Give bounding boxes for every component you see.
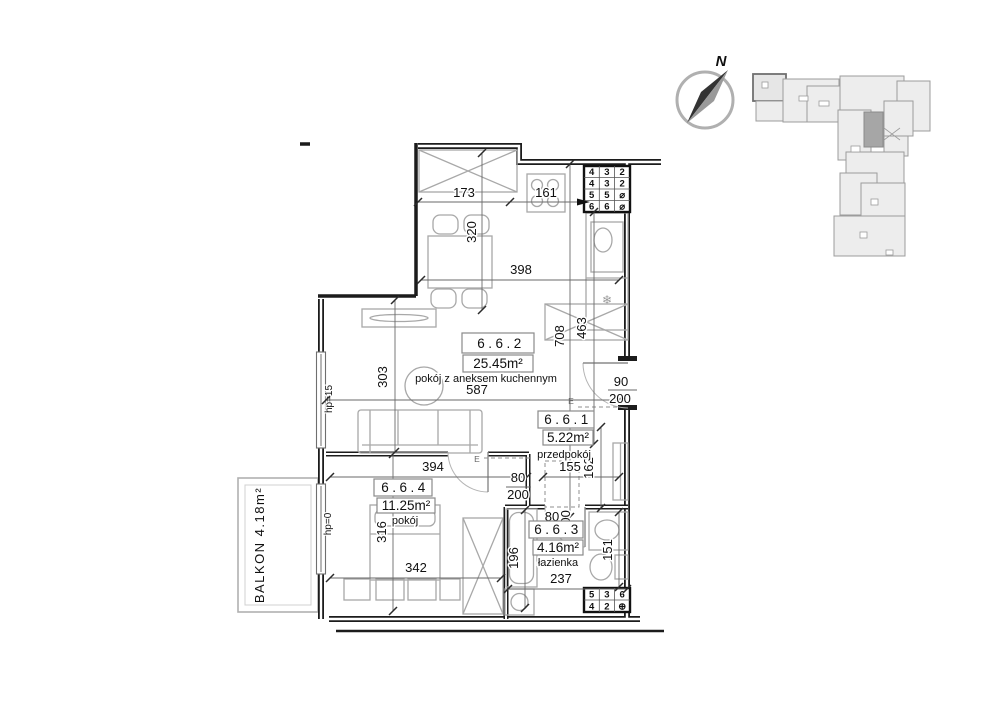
dim-303: 303 — [375, 366, 390, 388]
dim-entrance-width: 90 — [614, 374, 628, 389]
shaft-cell: 4 — [589, 602, 595, 613]
shaft-cell: 4 — [589, 179, 595, 190]
shaft-cell: 2 — [620, 167, 625, 178]
floor-plan-sheet: BALKON 4.18m² hp=15 hp=0 — [0, 0, 1000, 715]
shaft-cell: 6 — [604, 202, 609, 213]
north-label: N — [716, 53, 728, 70]
balcony-label: BALKON 4.18m² — [252, 487, 267, 603]
room-area: 25.45m² — [473, 356, 523, 371]
highlighted-unit — [864, 112, 883, 147]
entrance-jamb-top — [618, 356, 637, 361]
bedroom-door-arc — [448, 452, 488, 492]
dim-door-width: 80 — [511, 470, 525, 485]
shaft-cell: ⌀ — [619, 202, 625, 213]
window-upper-label: hp=15 — [324, 385, 335, 414]
shaft-cell: 5 — [589, 190, 595, 201]
dim-door-height: 200 — [507, 487, 529, 502]
dresser — [376, 579, 404, 600]
room-name: przedpokój — [537, 449, 591, 461]
window-lower-label: hp=0 — [323, 512, 334, 535]
room-name: pokój — [392, 515, 418, 527]
dim-151: 151 — [600, 539, 615, 561]
washing-machine — [505, 589, 534, 615]
room-id: 6.6.4 — [381, 480, 429, 495]
shaft-table-top: 4 3 2 4 3 2 5 5 ⌀ 6 6 ⌀ — [584, 166, 630, 213]
dim-196: 196 — [506, 547, 521, 569]
room-id: 6.6.1 — [544, 412, 592, 427]
compass: N — [677, 53, 733, 128]
shaft-cell: ⌀ — [619, 190, 625, 201]
room-label-living: 6.6.2 25.45m² pokój z aneksem kuchennym — [415, 333, 557, 385]
dim-342: 342 — [405, 560, 427, 575]
balcony: BALKON 4.18m² — [238, 478, 318, 612]
dim-708: 708 — [552, 325, 567, 347]
beam-label: E — [568, 396, 574, 406]
room-id: 6.6.3 — [534, 522, 582, 537]
dim-320: 320 — [464, 221, 479, 243]
room-area: 11.25m² — [382, 498, 431, 513]
dim-173: 173 — [453, 185, 475, 200]
beam-label: E — [474, 454, 480, 464]
room-label-bedroom: 6.6.4 11.25m² pokój — [374, 479, 435, 527]
dim-entrance-height: 200 — [609, 391, 631, 406]
room-name: łazienka — [538, 557, 579, 569]
shaft-cell: 3 — [604, 179, 609, 190]
dim-398: 398 — [510, 262, 532, 277]
shaft-cell: 4 — [589, 167, 595, 178]
shaft-table-bottom: 5 3 6 4 2 ⊕ — [584, 588, 630, 613]
room-id: 6.6.2 — [477, 336, 525, 351]
nightstand — [344, 579, 370, 600]
room-name: pokój z aneksem kuchennym — [415, 373, 557, 385]
shaft-cell: 3 — [604, 167, 609, 178]
dim-155: 155 — [559, 459, 581, 474]
dresser — [408, 579, 436, 600]
room-label-bathroom: 6.6.3 4.16m² łazienka — [529, 521, 583, 569]
floor-plan-drawing: BALKON 4.18m² hp=15 hp=0 — [0, 0, 1000, 715]
room-area: 5.22m² — [547, 430, 590, 445]
sofa — [358, 410, 482, 453]
dresser — [440, 579, 460, 600]
shaft-cell: 2 — [604, 602, 609, 613]
shaft-cell: 5 — [604, 190, 610, 201]
shaft-cell: 2 — [620, 179, 625, 190]
dim-463: 463 — [574, 317, 589, 339]
dim-394: 394 — [422, 459, 444, 474]
shaft-cell: 6 — [589, 202, 594, 213]
room-area: 4.16m² — [537, 540, 580, 555]
tv-board — [362, 309, 436, 327]
fridge-icon: ❄ — [602, 293, 612, 307]
building-key-map — [753, 74, 930, 256]
dim-237: 237 — [550, 571, 572, 586]
shaft-cell: ⊕ — [618, 602, 626, 613]
shaft-cell: 3 — [604, 590, 609, 601]
shaft-cell: 5 — [589, 590, 595, 601]
dim-161: 161 — [535, 185, 557, 200]
dim-316: 316 — [374, 521, 389, 543]
room-label-hall: 6.6.1 5.22m² przedpokój — [537, 411, 594, 461]
bedroom-wardrobe — [463, 518, 503, 614]
